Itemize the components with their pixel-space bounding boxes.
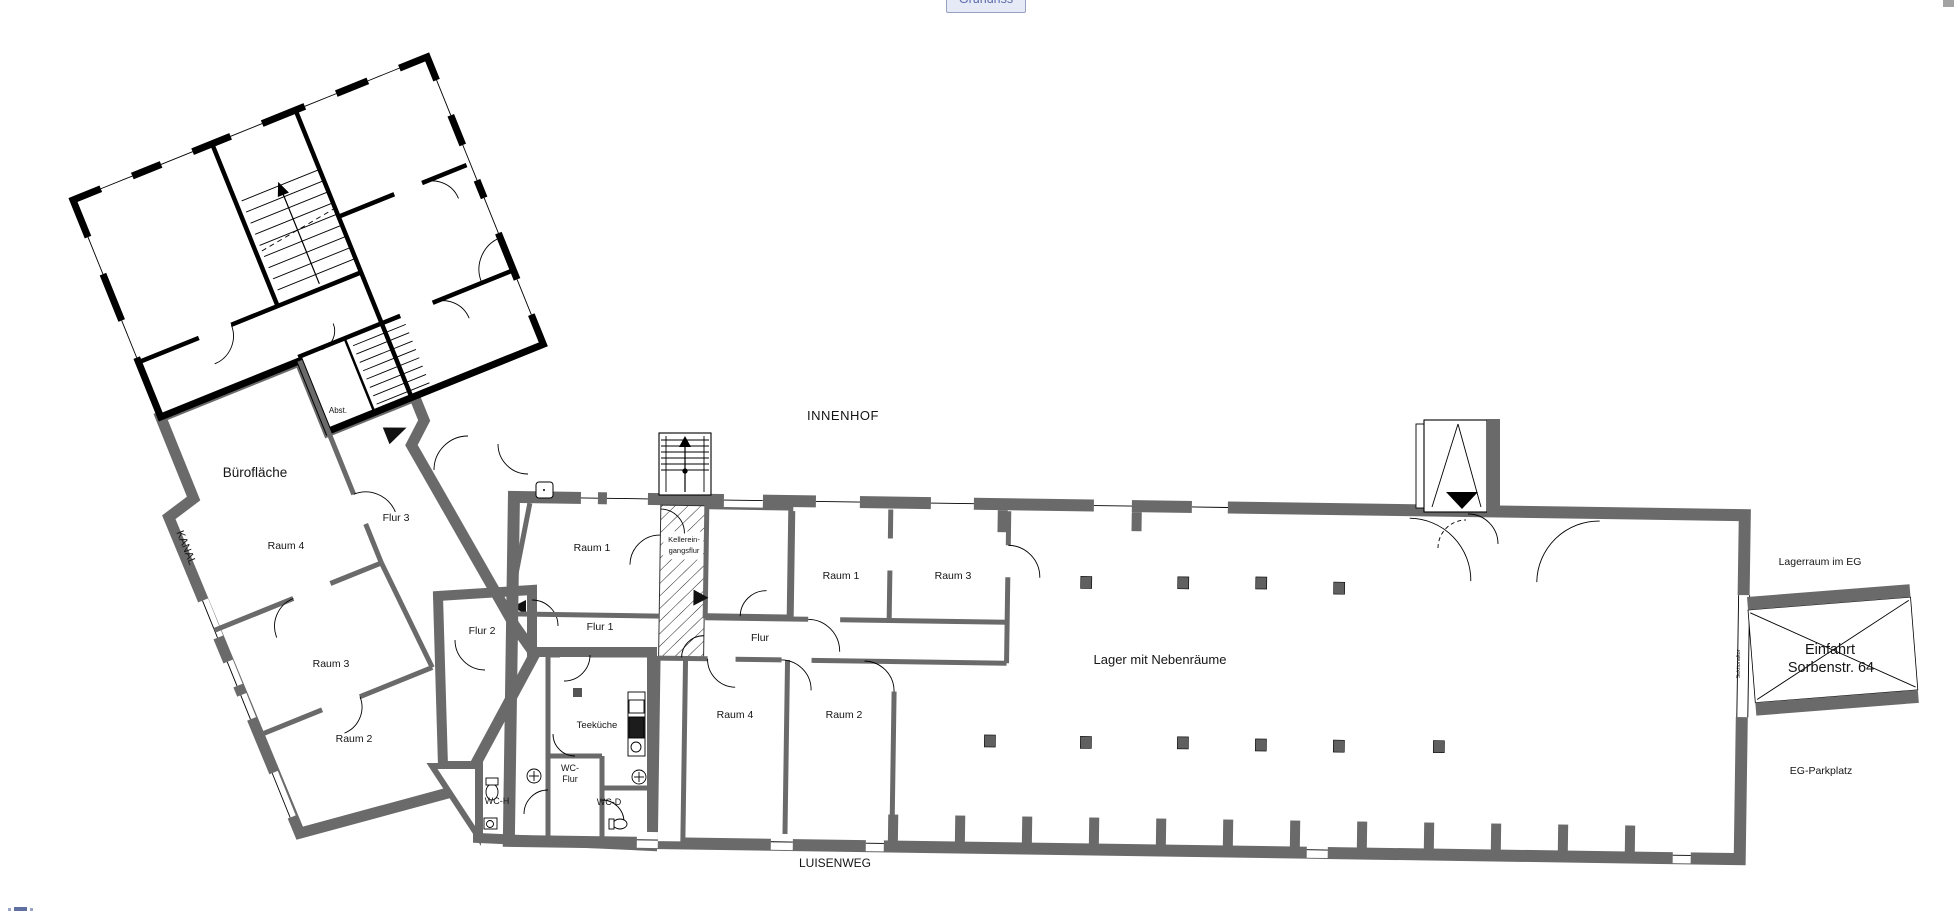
loading-lift (1416, 419, 1500, 548)
label-warehouse-raum1-west: Raum 1 (574, 542, 611, 554)
service-wing (432, 590, 652, 846)
label-innenhof: INNENHOF (807, 408, 879, 423)
page-edge-fragment (8, 907, 33, 911)
grundriss-button[interactable]: Grundriss (946, 0, 1026, 13)
label-flur1: Flur 1 (587, 621, 614, 633)
wall-piers (888, 509, 1640, 853)
label-wc-flur-1: WC- (561, 763, 579, 773)
label-office-raum4: Raum 4 (268, 540, 305, 552)
label-keller-2: gangsflur (669, 546, 700, 555)
fragment-dot (8, 908, 11, 911)
label-abst: Abst. (329, 406, 347, 415)
label-teekueche: Teeküche (577, 720, 618, 731)
label-flur2: Flur 2 (469, 625, 496, 637)
label-lager: Lager mit Nebenräume (1094, 652, 1227, 667)
label-warehouse-raum1-east: Raum 1 (823, 570, 860, 582)
label-lagerraum-im-eg: Lagerraum im EG (1779, 556, 1862, 568)
fragment-dash (14, 907, 27, 911)
fragment-dot (30, 908, 33, 911)
label-luisenweg: LUISENWEG (799, 856, 871, 870)
label-warehouse-raum3: Raum 3 (935, 570, 972, 582)
entrance-arrow (383, 419, 410, 444)
label-sektionaltor: Sektionaltor (1736, 649, 1742, 678)
scrollbar-fragment[interactable] (1943, 0, 1954, 7)
label-office-raum3: Raum 3 (313, 658, 350, 670)
fixture-dot (543, 489, 545, 491)
label-warehouse-raum2: Raum 2 (826, 709, 863, 721)
courtyard-door-arcs (434, 436, 528, 474)
label-einfahrt-2: Sorbenstr. 64 (1788, 660, 1874, 676)
floorplan: INNENHOF LUISENWEG KANAL Lagerraum im EG… (0, 0, 1957, 917)
label-warehouse-raum4: Raum 4 (717, 709, 754, 721)
label-einfahrt-1: Einfahrt (1805, 642, 1855, 658)
white-room (705, 507, 791, 617)
masonry-annex (73, 57, 543, 488)
label-eg-parkplatz: EG-Parkplatz (1790, 765, 1852, 777)
label-buroflaeche: Bürofläche (223, 465, 288, 480)
label-wc-h: WC-H (485, 796, 510, 806)
label-office-raum2: Raum 2 (336, 733, 373, 745)
keller-hatch (659, 505, 706, 659)
label-wc-d: WC-D (597, 797, 622, 807)
label-warehouse-flur: Flur (751, 632, 770, 644)
label-keller-1: Kellerein- (668, 535, 700, 544)
label-wc-flur-2: Flur (562, 774, 578, 784)
label-flur3: Flur 3 (383, 512, 410, 524)
office-windows (197, 598, 296, 819)
